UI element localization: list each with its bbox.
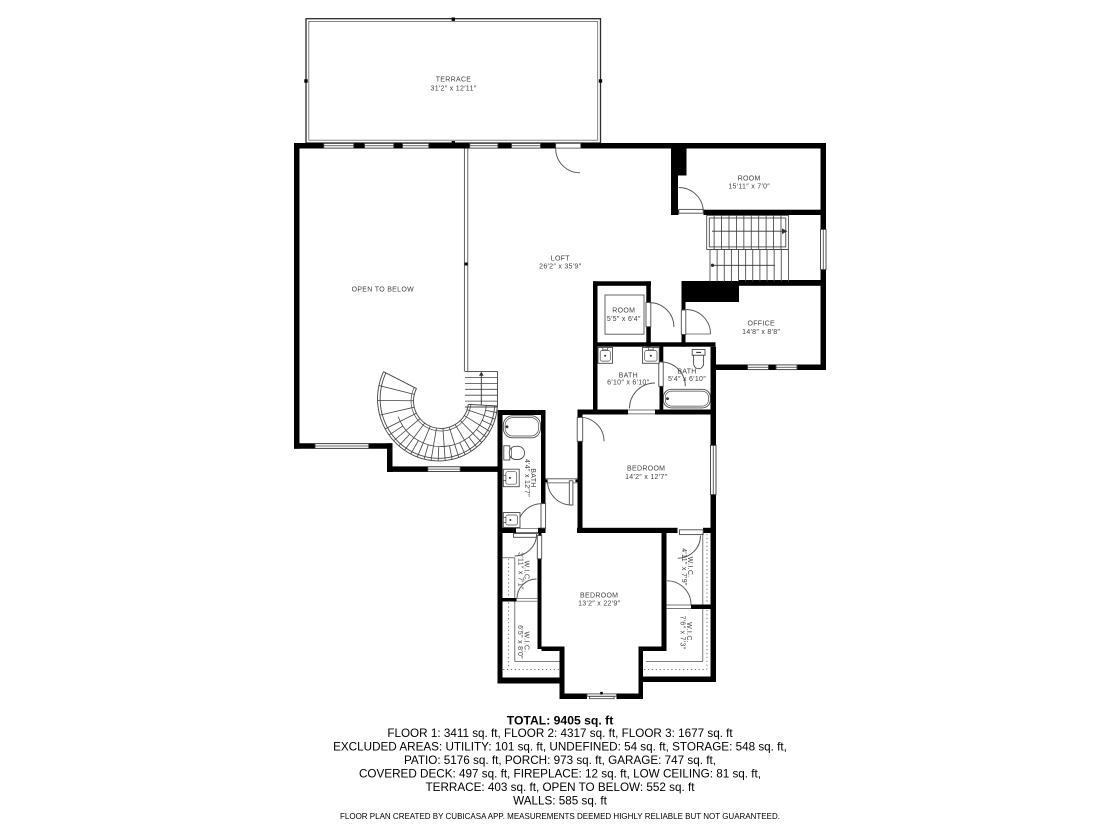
svg-text:TERRACE: 403 sq. ft, OPEN TO B: TERRACE: 403 sq. ft, OPEN TO BELOW: 552 … — [426, 781, 696, 794]
svg-text:BEDROOM13′2″ x 22′9″: BEDROOM13′2″ x 22′9″ — [578, 592, 620, 607]
svg-text:TOTAL: 9405 sq. ft: TOTAL: 9405 sq. ft — [507, 714, 614, 728]
svg-text:WALLS: 585 sq. ft: WALLS: 585 sq. ft — [513, 794, 608, 807]
svg-text:FLOOR 1: 3411 sq. ft, FLOOR 2:: FLOOR 1: 3411 sq. ft, FLOOR 2: 4317 sq. … — [387, 727, 733, 740]
svg-text:BEDROOM14′2″ x 12′7″: BEDROOM14′2″ x 12′7″ — [625, 466, 667, 481]
svg-text:TERRACE31′2″ x 12′11″: TERRACE31′2″ x 12′11″ — [431, 77, 477, 93]
svg-text:COVERED DECK: 497 sq. ft, FIRE: COVERED DECK: 497 sq. ft, FIREPLACE: 12 … — [359, 768, 761, 781]
svg-text:FLOOR PLAN CREATED BY CUBICASA: FLOOR PLAN CREATED BY CUBICASA APP. MEAS… — [340, 812, 780, 821]
svg-text:PATIO: 5176 sq. ft, PORCH: 973: PATIO: 5176 sq. ft, PORCH: 973 sq. ft, G… — [404, 754, 716, 767]
svg-text:EXCLUDED AREAS: UTILITY: 101 s: EXCLUDED AREAS: UTILITY: 101 sq. ft, UND… — [333, 741, 787, 754]
svg-text:OPEN TO BELOW: OPEN TO BELOW — [352, 287, 414, 294]
svg-text:OFFICE14′8″ x 8′8″: OFFICE14′8″ x 8′8″ — [742, 321, 780, 336]
